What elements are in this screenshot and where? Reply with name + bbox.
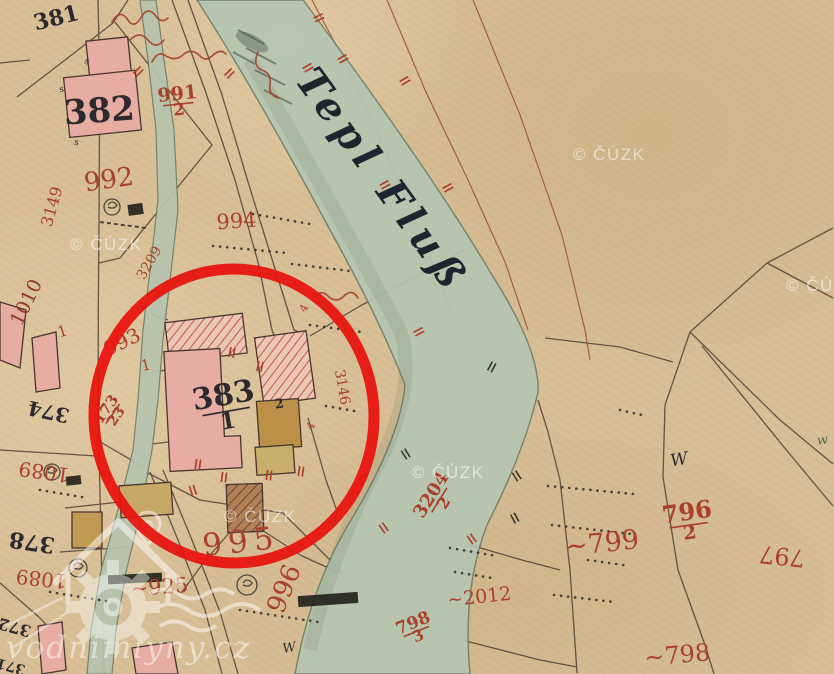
cuzk-watermark: © ČÚZK <box>70 235 143 254</box>
cuzk-watermark: © ČÚZK <box>412 463 485 482</box>
map-canvas: Tepl Fluß <box>0 0 834 674</box>
parcel-label: 378 <box>7 526 56 558</box>
waterways: Tepl Fluß <box>87 0 538 674</box>
cuzk-watermark: © ČÚZK <box>224 507 297 526</box>
cuzk-watermark: © ČÚZK <box>786 276 834 295</box>
building-1009 <box>32 332 60 392</box>
parcel-label: W <box>669 448 691 471</box>
mill-building-cluster-383 <box>164 313 316 532</box>
parcel-label: ~799 <box>564 524 641 563</box>
parcel-label: 992 <box>82 162 135 199</box>
parcel-label: 4 <box>297 302 312 315</box>
vodnimlyny-watermark-text: vodnimlyny.cz <box>6 630 252 666</box>
parcel-label: W <box>282 640 299 657</box>
cuzk-watermark: © ČÚZK <box>573 145 646 164</box>
parcel-label: 1089 <box>17 457 71 488</box>
parcel-label: 3146 <box>331 368 353 406</box>
parcel-label: 996 <box>261 560 307 617</box>
parcel-fraction-label: 7962 <box>660 494 716 548</box>
parcel-label: ~798 <box>643 638 711 672</box>
parcel-label: 374 <box>26 396 72 428</box>
parcel-label: s <box>73 138 80 149</box>
parcel-label: 4 <box>304 420 319 433</box>
parcel-label: 381 <box>31 0 82 36</box>
parcel-label: 1010 <box>6 276 47 329</box>
svg-text:1: 1 <box>218 408 238 436</box>
parcel-label: 382 <box>62 89 136 134</box>
parcel-label: 797 <box>758 540 806 573</box>
parcel-label: 3149 <box>37 184 66 228</box>
svg-text:2: 2 <box>172 100 185 120</box>
parcel-label: w <box>816 432 829 448</box>
parcel-label: 994 <box>216 208 258 235</box>
parcel-label: 1 <box>55 321 70 341</box>
historical-map[interactable]: Tepl Fluß <box>0 0 834 674</box>
river-tepl <box>197 0 538 674</box>
